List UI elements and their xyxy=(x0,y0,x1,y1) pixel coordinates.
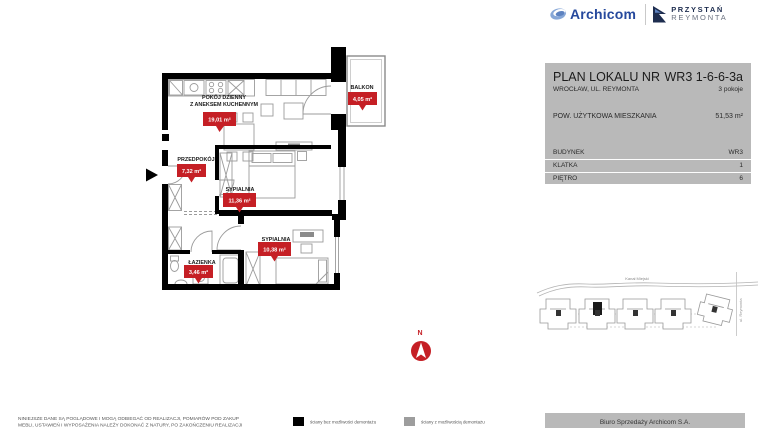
bedroom2-door-arc xyxy=(217,226,241,250)
area-value-sypialnia-2: 10,38 m² xyxy=(263,247,286,254)
legend-label-solid-wall: ściany bez możliwości demontażu xyxy=(310,420,377,425)
compass: N xyxy=(411,330,431,361)
project-name-line2: REYMONTA xyxy=(671,14,727,22)
table-row-pietro: PIĘTRO 6 xyxy=(545,172,751,185)
area-value-przedpokoj: 7,32 m² xyxy=(182,168,201,175)
disclaimer-line-1: NINIEJSZE DANE SĄ POGLĄDOWE I MOGĄ ODBIE… xyxy=(18,415,239,422)
archicom-logo-icon xyxy=(550,7,567,21)
room-label-przedpokoj: PRZEDPOKÓJ xyxy=(177,155,214,163)
bathroom-door-arc xyxy=(191,231,212,252)
area-tag-przedpokoj: 7,32 m² xyxy=(177,164,206,183)
balcony-door-arc xyxy=(303,86,331,114)
unit-info-panel: PLAN LOKALU NR WR3 1-6-6-3a WROCŁAW, UL.… xyxy=(545,63,751,184)
area-value-lazienka: 3,46 m² xyxy=(189,269,208,276)
buildings xyxy=(540,293,735,329)
entrance-arrow xyxy=(146,169,158,182)
building-4 xyxy=(655,299,691,329)
area-tag-lazienka: 3,46 m² xyxy=(184,265,213,284)
archicom-wordmark: Archicom xyxy=(570,6,636,22)
logo-divider xyxy=(645,4,646,25)
budynek-value: WR3 xyxy=(729,147,743,159)
footer-strip: NINIEJSZE DANE SĄ POGLĄDOWE I MOGĄ ODBIE… xyxy=(0,405,545,428)
table-row-klatka: KLATKA 1 xyxy=(545,159,751,172)
site-plan: Kanał Miejski ul. Reymonta xyxy=(535,265,760,340)
area-tag-living: 19,01 m² xyxy=(203,112,236,132)
klatka-value: 1 xyxy=(739,160,743,172)
furniture-layer xyxy=(168,80,331,289)
unit-details-table: BUDYNEK WR3 KLATKA 1 PIĘTRO 6 xyxy=(545,147,751,185)
header-logos: Archicom PRZYSTAŃ REYMONTA xyxy=(550,2,728,26)
sales-office-label: Biuro Sprzedaży Archicom S.A. xyxy=(600,419,690,426)
przystan-logo-icon xyxy=(653,6,666,23)
floor-plan-sheet: Archicom PRZYSTAŃ REYMONTA PLAN LOKALU N… xyxy=(0,0,760,428)
budynek-label: BUDYNEK xyxy=(553,147,584,159)
building-5 xyxy=(696,293,735,327)
building-2-highlighted xyxy=(579,299,615,329)
balcony-outline xyxy=(347,56,385,126)
room-label-balkon: BALKON xyxy=(350,85,373,91)
project-name: PRZYSTAŃ REYMONTA xyxy=(671,6,727,22)
rooms-count: 3 pokoje xyxy=(718,86,743,93)
disclaimer-line-2: MEBLI, USTAWIEŃ I WYPOSAŻENIA NALEŻY DOK… xyxy=(18,422,242,428)
legend-swatch-solid-wall xyxy=(293,417,304,426)
pietro-value: 6 xyxy=(739,173,743,185)
area-value-living: 19,01 m² xyxy=(208,117,231,124)
usable-area-value: 51,53 m² xyxy=(715,113,743,120)
compass-north-label: N xyxy=(417,330,422,337)
unit-address: WROCŁAW, UL. REYMONTA xyxy=(553,86,639,93)
room-label-living-2: Z ANEKSEM KUCHENNYM xyxy=(190,102,259,108)
room-label-living: POKÓJ DZIENNY xyxy=(202,93,246,101)
building-1 xyxy=(540,299,576,329)
canal-label: Kanał Miejski xyxy=(625,276,649,281)
unit-number: WR3 1-6-6-3a xyxy=(665,70,744,84)
sales-office-box: Biuro Sprzedaży Archicom S.A. xyxy=(545,413,745,428)
canal-lines xyxy=(537,282,758,296)
legend-label-removable-wall: ściany z możliwością demontażu xyxy=(421,420,485,425)
street-label: ul. Reymonta xyxy=(738,298,743,322)
room-label-sypialnia-1: SYPIALNIA xyxy=(226,187,255,193)
usable-area-label: POW. UŻYTKOWA MIESZKANIA xyxy=(553,113,657,120)
legend-swatch-removable-wall xyxy=(404,417,415,426)
table-row-budynek: BUDYNEK WR3 xyxy=(545,147,751,159)
area-value-sypialnia-1: 11,36 m² xyxy=(228,198,250,205)
floor-plan-drawing: POKÓJ DZIENNY Z ANEKSEM KUCHENNYM BALKON… xyxy=(140,40,442,366)
area-tag-sypialnia-2: 10,38 m² xyxy=(258,242,291,262)
area-value-balkon: 4,05 m² xyxy=(353,96,372,103)
building-3 xyxy=(617,299,653,329)
area-tag-sypialnia-1: 11,36 m² xyxy=(223,193,256,213)
pietro-label: PIĘTRO xyxy=(553,173,577,185)
klatka-label: KLATKA xyxy=(553,160,577,172)
plan-title: PLAN LOKALU NR xyxy=(553,70,660,84)
